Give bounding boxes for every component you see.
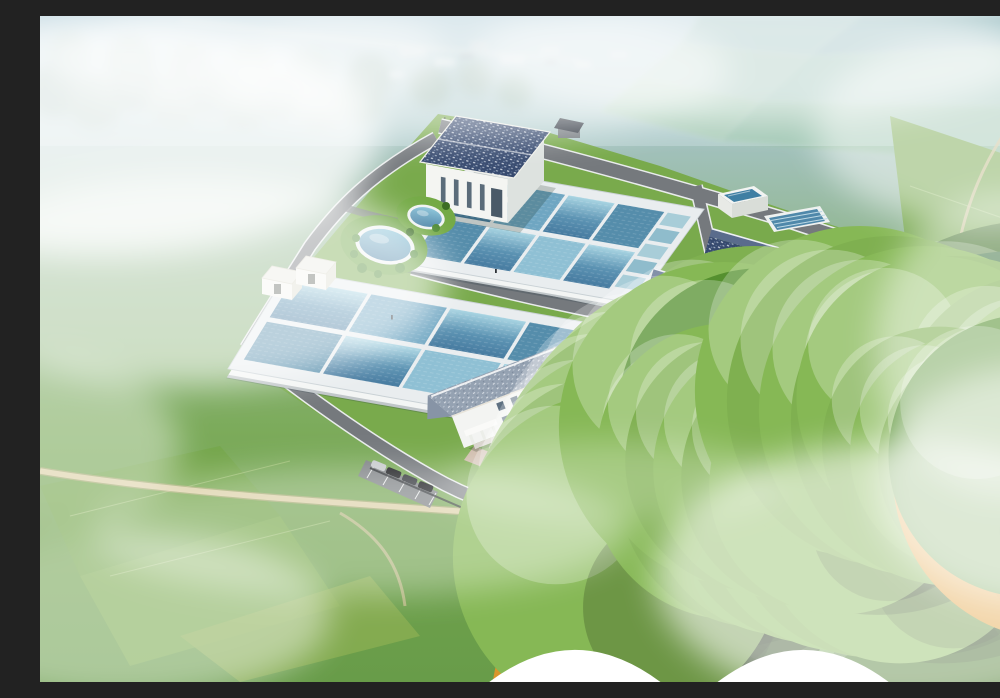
door bbox=[491, 188, 502, 218]
aerial-rendering: Bird's-eye 3D architectural rendering of… bbox=[40, 16, 1000, 682]
scene-canvas bbox=[40, 16, 1000, 682]
